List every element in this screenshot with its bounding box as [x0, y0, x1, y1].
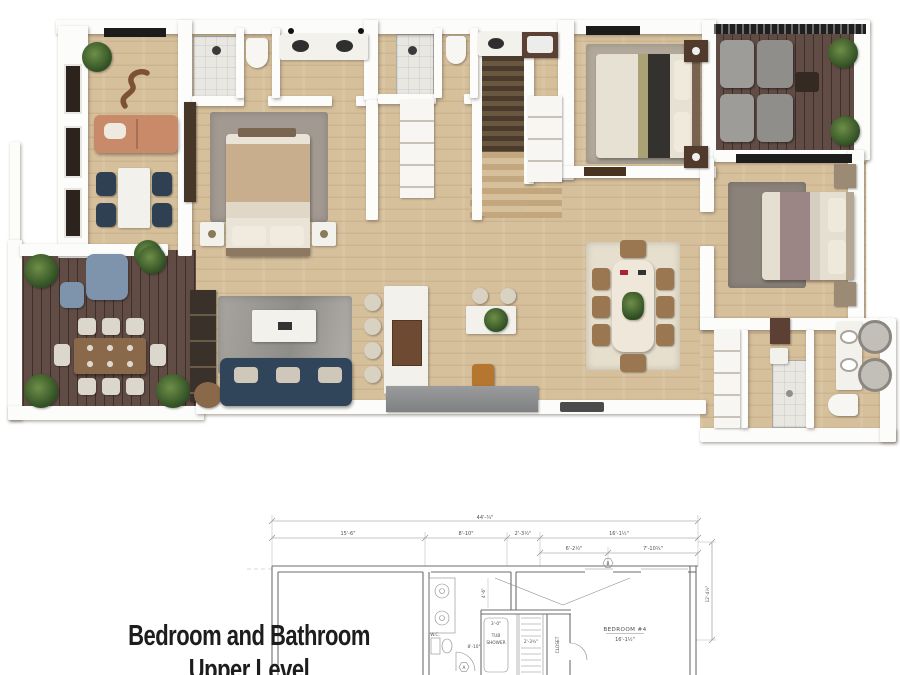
nightstand-dark	[684, 146, 708, 168]
lamp	[320, 230, 328, 238]
dining-chair	[592, 268, 610, 290]
dining-table	[612, 260, 654, 352]
deck-chair	[126, 318, 144, 335]
dim-hall-4-6: 4'-6"	[481, 588, 487, 598]
vanity-sink	[840, 358, 858, 372]
bedroom-bed	[762, 192, 854, 280]
deck-chair	[78, 378, 96, 395]
marker-b-label: B	[607, 561, 610, 567]
closet-shelves	[714, 330, 740, 428]
island-cabinet-door	[392, 320, 422, 366]
deck-chair	[78, 318, 96, 335]
lantern	[472, 364, 494, 388]
bed-fold	[810, 192, 820, 280]
potted-plant	[82, 42, 112, 72]
wall	[470, 28, 478, 98]
wall	[10, 142, 20, 244]
deck-chair	[102, 318, 120, 335]
sofa-throw	[104, 123, 126, 139]
bedroom1-bed	[226, 134, 310, 256]
table-chair	[152, 203, 172, 227]
vanity-sink	[840, 330, 858, 344]
vanity-sink	[488, 38, 504, 49]
deck-ottoman	[60, 282, 84, 308]
vanity-sink	[336, 40, 353, 52]
deck-plant	[24, 374, 58, 408]
shower-head	[408, 46, 417, 55]
nightstand	[200, 222, 224, 246]
marker-a-label: A	[463, 665, 466, 671]
dining-chair	[656, 296, 674, 318]
balcony-railing	[714, 24, 866, 34]
nightstand-tan	[834, 164, 856, 188]
round-mirror	[858, 358, 892, 392]
tub-inner	[527, 36, 553, 53]
lamp	[208, 230, 216, 238]
wall	[434, 28, 442, 98]
bed-bench	[238, 128, 296, 137]
closet-label: CLOSET	[555, 636, 561, 653]
lamp	[692, 153, 700, 161]
hall-closet-shelves	[400, 100, 434, 198]
window	[64, 188, 82, 238]
bed-pillow	[232, 226, 266, 246]
bar-stool	[364, 342, 381, 359]
bedroom4-label: BEDROOM #4	[603, 627, 646, 633]
deck-chair	[150, 344, 166, 366]
bed-pillow	[828, 240, 846, 274]
lamp	[692, 47, 700, 55]
headboard	[846, 192, 854, 280]
bed-fold	[226, 202, 310, 218]
deck-plant	[156, 374, 190, 408]
sofa-pillow	[276, 367, 300, 383]
wall	[700, 428, 896, 442]
bar-stool	[364, 318, 381, 335]
dim-7-10: 7'-10¾"	[643, 546, 663, 552]
dining-chair	[656, 268, 674, 290]
table-decor	[278, 322, 292, 330]
window	[64, 126, 82, 178]
counter-stool	[472, 288, 488, 304]
counter-stool	[500, 288, 516, 304]
wall	[740, 330, 748, 428]
bed-pillow	[674, 60, 690, 100]
deck-plant	[138, 246, 166, 274]
dim-2-3: 2'-3½"	[515, 530, 532, 537]
bar-stool	[364, 294, 381, 311]
dining-chair	[620, 240, 646, 258]
bath-cabinet-brown	[770, 318, 790, 344]
dining-chair	[592, 324, 610, 346]
linen-closet-shelves	[528, 96, 562, 182]
dim-overall: 44'-¾"	[477, 515, 494, 521]
balcony-plant	[828, 38, 858, 68]
deck-chair	[102, 378, 120, 395]
dining-chair	[620, 354, 646, 372]
tub-shower-brown	[522, 32, 558, 58]
door-mat	[560, 402, 604, 412]
bed-pillow	[270, 226, 304, 246]
sofa-navy	[220, 358, 352, 406]
tub-label-1: TUB	[491, 633, 501, 639]
blueprint-text: 44'-¾" 15'-6" 8'-10" 2'-3½" 16'-1½" 6'-2…	[340, 515, 711, 671]
window	[64, 64, 82, 114]
headboard	[692, 54, 700, 158]
nightstand-dark	[684, 40, 708, 62]
dim-6-2: 6'-2½"	[566, 545, 583, 552]
kitchen-counter	[386, 386, 538, 412]
coffee-table	[252, 310, 316, 342]
wall-tv	[736, 154, 852, 163]
table-chair	[96, 203, 116, 227]
bar-stool	[364, 366, 381, 383]
bed-pillow	[828, 198, 846, 232]
sofa-coral	[94, 115, 178, 153]
deck-plant	[24, 254, 58, 288]
shower-floor-2	[396, 34, 434, 102]
blueprint-stairs	[521, 618, 541, 672]
master-bed	[596, 54, 700, 158]
dim-tub-3-0: 3'-0"	[491, 621, 501, 627]
tub-label-2: SHOWER	[486, 640, 505, 646]
kitchen-island	[384, 286, 428, 394]
window	[104, 28, 166, 37]
bed-throw	[780, 192, 810, 280]
dim-8-10: 8'-10"	[458, 531, 473, 537]
counter-plant	[484, 308, 508, 332]
caption-title-line2: Upper Level	[118, 653, 380, 675]
staircase-upper	[482, 56, 524, 152]
blueprint-fixtures	[429, 559, 644, 672]
floor-plan-page: 44'-¾" 15'-6" 8'-10" 2'-3½" 16'-1½" 6'-2…	[0, 0, 900, 675]
vanity-sink	[292, 40, 309, 52]
dining-chair	[592, 296, 610, 318]
deck-lounge-chair	[86, 254, 128, 300]
wall	[364, 20, 378, 100]
nightstand-tan	[834, 282, 856, 306]
headboard	[226, 248, 310, 256]
floor-cushion	[194, 382, 222, 408]
deck-chair	[54, 344, 70, 366]
balcony-side-table	[795, 72, 819, 92]
wall	[8, 240, 22, 420]
deck-chair	[126, 378, 144, 395]
place-setting	[638, 270, 646, 275]
dim-stair-2-3: 2'-3¾"	[524, 639, 538, 645]
lounger-cushion	[720, 40, 754, 88]
wall-squiggle-decor	[116, 66, 156, 110]
bedroom4-dim: 16'-1½"	[615, 636, 635, 643]
wall	[8, 406, 204, 420]
wall	[806, 330, 814, 428]
nightstand	[312, 222, 336, 246]
staircase-lower	[482, 152, 524, 216]
lounger-cushion	[720, 94, 754, 142]
wardrobe-dark	[184, 102, 196, 202]
round-mirror	[858, 320, 892, 354]
caption-title-line1: Bedroom and Bathroom	[118, 619, 380, 653]
game-table	[118, 168, 150, 228]
shower-head	[212, 46, 221, 55]
table-chair	[96, 172, 116, 196]
dim-16-1: 16'-1½"	[609, 530, 629, 537]
toilet	[246, 38, 268, 68]
sliding-door	[584, 167, 626, 176]
place-setting	[620, 270, 628, 275]
dim-bath-8-10: 8'-10"	[468, 644, 481, 650]
wall	[366, 100, 378, 220]
shower-drain	[786, 390, 793, 397]
dim-15-6: 15'-6"	[340, 531, 355, 537]
sofa-pillow	[318, 367, 342, 383]
wc-label: W.C.	[430, 632, 440, 638]
table-centerpiece	[622, 292, 644, 320]
balcony-plant	[830, 116, 860, 146]
small-sink	[770, 348, 788, 364]
wall	[236, 28, 244, 98]
bed-accent-stripe	[638, 54, 648, 158]
lounger-cushion	[757, 40, 793, 88]
table-chair	[152, 172, 172, 196]
sofa-cushion-line	[136, 119, 138, 149]
window	[586, 26, 640, 35]
bed-duvet	[226, 144, 310, 202]
outdoor-dining-table	[74, 338, 146, 374]
toilet	[446, 36, 466, 64]
bed-runner	[648, 54, 670, 158]
lounger-cushion	[757, 94, 793, 142]
toilet	[828, 394, 858, 416]
dim-side-12-4: 12'-4½"	[704, 585, 711, 602]
dining-chair	[656, 324, 674, 346]
wall	[272, 28, 280, 98]
sofa-pillow	[234, 367, 258, 383]
